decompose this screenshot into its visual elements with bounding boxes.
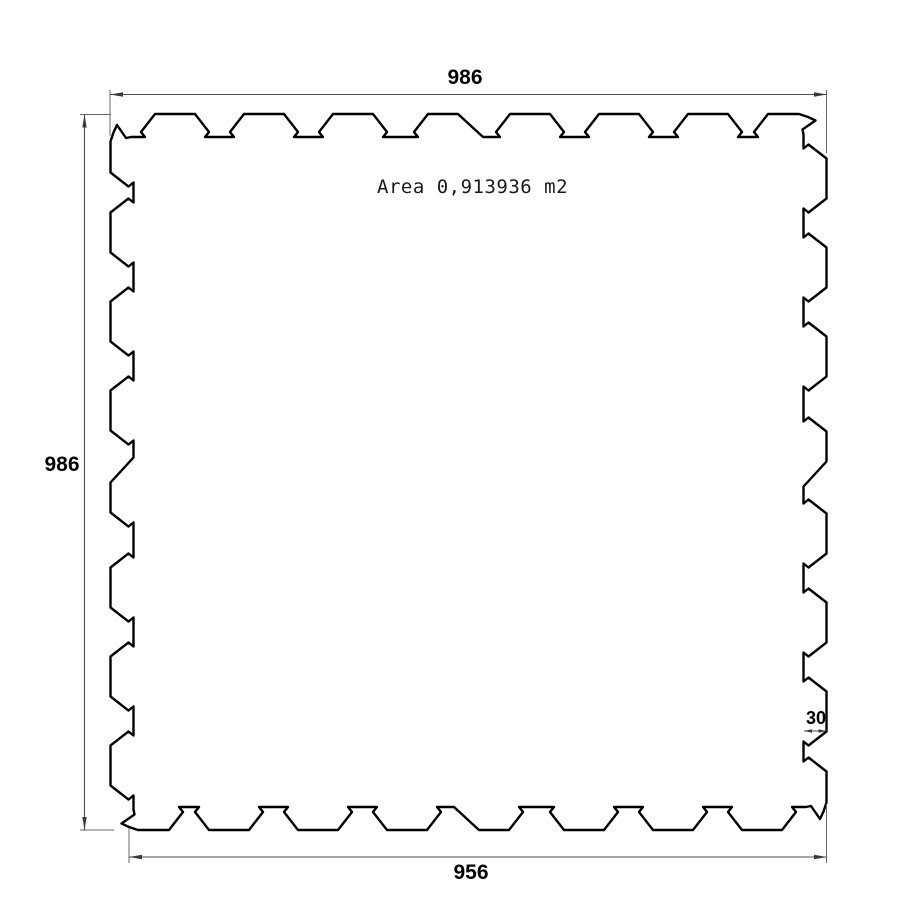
tooth-dimension-label: 30 xyxy=(806,708,826,728)
bottom-dim-arrow-left xyxy=(129,855,142,859)
left-dim-arrow-bottom xyxy=(82,817,86,830)
tile-drawing: 986 986 956 30 Area 0,913936 m2 xyxy=(0,0,900,900)
top-dim-arrow-left xyxy=(110,92,123,96)
top-dimension-label: 986 xyxy=(447,66,482,89)
bottom-dimension-label: 956 xyxy=(453,861,488,884)
area-label: Area 0,913936 m2 xyxy=(377,176,568,198)
drawing-canvas: 986 986 956 30 Area 0,913936 m2 xyxy=(0,0,900,900)
left-dim-arrow-top xyxy=(82,115,86,128)
bottom-dim-arrow-right xyxy=(814,855,827,859)
tile-outline xyxy=(111,114,827,830)
top-dim-arrow-right xyxy=(814,92,827,96)
left-dimension-label: 986 xyxy=(44,453,79,476)
